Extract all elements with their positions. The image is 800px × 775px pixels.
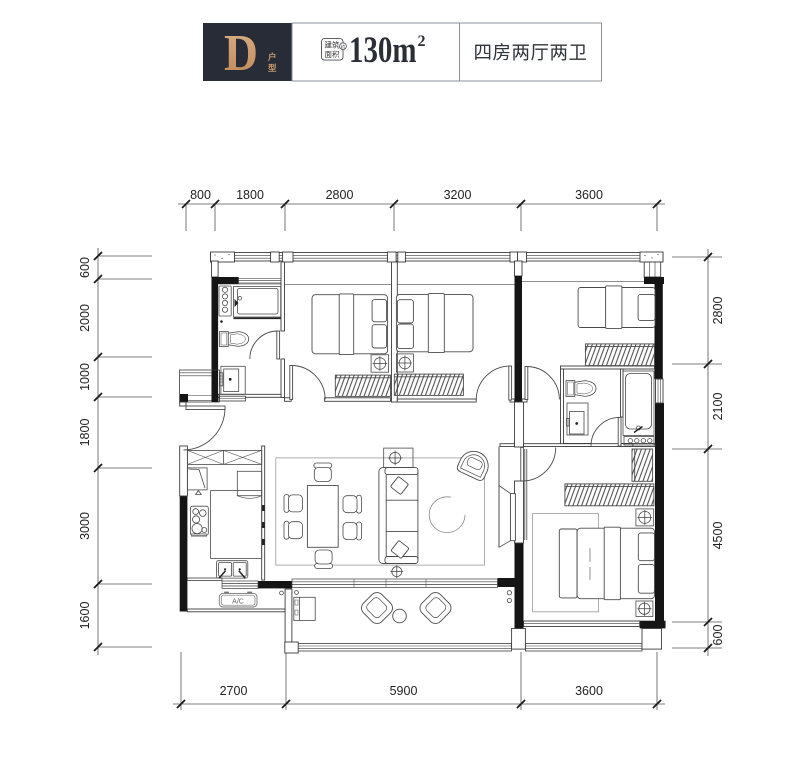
svg-text:3000: 3000 xyxy=(78,512,92,540)
svg-text:2: 2 xyxy=(418,33,426,50)
svg-text:约: 约 xyxy=(341,43,346,50)
svg-text:建筑: 建筑 xyxy=(325,40,340,50)
svg-text:1600: 1600 xyxy=(78,602,92,630)
svg-text:130m: 130m xyxy=(349,30,417,71)
svg-text:四房两厅两卫: 四房两厅两卫 xyxy=(473,42,587,63)
svg-text:2000: 2000 xyxy=(78,304,92,332)
svg-text:600: 600 xyxy=(78,257,92,278)
svg-text:600: 600 xyxy=(711,625,725,646)
svg-text:5900: 5900 xyxy=(390,684,418,698)
svg-text:A/C: A/C xyxy=(232,598,244,605)
svg-text:户: 户 xyxy=(267,52,277,62)
svg-text:1000: 1000 xyxy=(78,363,92,391)
svg-text:2100: 2100 xyxy=(711,393,725,421)
svg-text:面积: 面积 xyxy=(325,49,340,59)
svg-text:3600: 3600 xyxy=(575,188,603,202)
svg-text:3200: 3200 xyxy=(444,188,472,202)
svg-text:1800: 1800 xyxy=(78,419,92,447)
svg-text:3600: 3600 xyxy=(575,684,603,698)
svg-text:型: 型 xyxy=(268,63,277,73)
svg-text:800: 800 xyxy=(190,188,211,202)
svg-text:2800: 2800 xyxy=(711,297,725,325)
svg-text:4500: 4500 xyxy=(711,522,725,550)
svg-text:2800: 2800 xyxy=(326,188,354,202)
svg-text:2700: 2700 xyxy=(220,684,248,698)
svg-text:D: D xyxy=(224,25,258,82)
svg-text:1800: 1800 xyxy=(236,188,264,202)
